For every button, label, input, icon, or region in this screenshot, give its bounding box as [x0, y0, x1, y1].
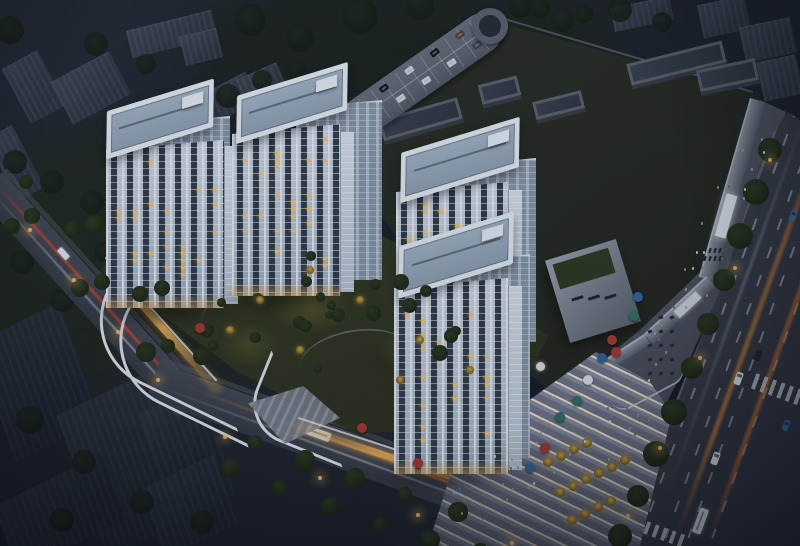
cafe-table — [659, 357, 664, 361]
bike-rack — [718, 248, 722, 253]
person — [728, 185, 730, 188]
lit-tree — [620, 455, 630, 465]
person — [608, 458, 610, 461]
cafe-table — [648, 329, 653, 333]
person — [510, 467, 512, 470]
street-light — [116, 330, 120, 334]
person — [639, 419, 641, 422]
cafe-table — [648, 315, 653, 319]
person — [506, 498, 508, 501]
lit-tree — [607, 462, 617, 472]
street-tree — [161, 339, 175, 353]
cafe-table — [648, 357, 653, 361]
street-tree — [208, 340, 219, 351]
person — [661, 324, 663, 327]
umbrella-red — [611, 347, 621, 357]
bike-rack — [713, 248, 717, 253]
street-light — [626, 514, 630, 518]
person — [761, 138, 763, 141]
street-tree — [713, 269, 734, 290]
cafe-table — [659, 315, 664, 319]
street-light — [223, 435, 227, 439]
cafe-table — [648, 343, 653, 347]
street-light — [416, 513, 420, 517]
street-tree — [370, 279, 381, 290]
cafe-table — [659, 329, 664, 333]
person — [721, 257, 723, 260]
bike-rack — [713, 256, 717, 261]
street-light — [768, 158, 772, 162]
umbrella-red — [413, 458, 423, 468]
person — [629, 427, 631, 430]
street-tree — [132, 286, 147, 301]
person — [685, 288, 687, 291]
street-tree — [643, 441, 669, 467]
person — [648, 419, 650, 422]
street-tree — [295, 450, 314, 469]
street-tree — [448, 502, 467, 521]
cafe-table — [670, 357, 675, 361]
person — [459, 487, 461, 490]
street-tree — [661, 399, 686, 424]
street-tree — [697, 313, 719, 335]
person — [517, 466, 519, 469]
street-tree — [314, 365, 322, 373]
person — [502, 483, 504, 486]
street-tree — [321, 497, 340, 516]
person — [584, 440, 586, 443]
lit-tree — [556, 451, 566, 461]
lit-tree — [356, 296, 364, 304]
person — [655, 363, 657, 366]
street-tree — [727, 223, 753, 249]
lit-tree — [581, 474, 591, 484]
street-tree — [154, 280, 170, 296]
person — [706, 294, 708, 297]
person — [533, 482, 535, 485]
lit-tree — [568, 481, 578, 491]
cafe-table — [659, 371, 664, 375]
street-tree — [681, 357, 703, 379]
street-light — [156, 378, 160, 382]
street-tree — [221, 459, 240, 478]
street-tree — [19, 175, 34, 190]
street-tree — [136, 342, 156, 362]
umbrella-red — [195, 323, 205, 333]
street-tree — [306, 251, 316, 261]
street-tree — [393, 274, 408, 289]
street-tree — [24, 208, 39, 223]
lit-tree — [543, 457, 553, 467]
person — [511, 458, 513, 461]
person — [703, 251, 705, 254]
person — [553, 471, 555, 474]
lit-tree — [594, 468, 604, 478]
bike-rack — [698, 256, 702, 261]
umbrella-blue — [597, 353, 607, 363]
person — [701, 266, 703, 269]
person — [654, 332, 656, 335]
cafe-table — [670, 315, 675, 319]
person — [751, 168, 753, 171]
person — [684, 268, 686, 271]
street-tree — [402, 298, 417, 313]
trees-lights-people — [0, 0, 800, 546]
street-tree — [250, 332, 262, 344]
umbrella-teal — [629, 311, 639, 321]
lit-tree — [567, 515, 577, 525]
gazebo — [536, 362, 545, 371]
street-tree — [398, 487, 412, 501]
lit-tree — [466, 366, 474, 374]
person — [528, 486, 530, 489]
umbrella-red — [607, 335, 617, 345]
person — [626, 407, 628, 410]
person — [648, 379, 650, 382]
bike-rack — [693, 256, 697, 261]
street-tree — [432, 345, 448, 361]
street-tree — [301, 276, 312, 287]
street-tree — [420, 530, 439, 546]
street-tree — [299, 320, 312, 333]
street-tree — [608, 524, 632, 546]
street-light — [510, 541, 514, 545]
umbrella-blue — [525, 463, 535, 473]
bike-rack — [703, 256, 707, 261]
lit-tree — [593, 502, 603, 512]
person — [574, 473, 576, 476]
cafe-table — [648, 371, 653, 375]
person — [469, 513, 471, 516]
person — [461, 512, 463, 515]
person — [685, 306, 687, 309]
street-light — [318, 476, 322, 480]
street-tree — [64, 222, 80, 238]
umbrella-red — [357, 423, 367, 433]
cafe-table — [659, 343, 664, 347]
lit-tree — [296, 346, 304, 354]
person — [634, 433, 636, 436]
lit-tree — [416, 336, 424, 344]
cafe-table — [670, 343, 675, 347]
lit-tree — [606, 496, 616, 506]
person — [501, 500, 503, 503]
street-tree — [248, 435, 262, 449]
person — [482, 517, 484, 520]
street-light — [658, 446, 662, 450]
person — [692, 267, 694, 270]
street-tree — [4, 218, 19, 233]
street-tree — [420, 285, 432, 297]
street-tree — [272, 480, 287, 495]
street-tree — [366, 305, 382, 321]
lit-tree — [226, 326, 234, 334]
street-tree — [85, 215, 103, 233]
street-tree — [331, 308, 345, 322]
person — [742, 149, 744, 152]
person — [717, 186, 719, 189]
person — [696, 251, 698, 254]
person — [453, 491, 455, 494]
person — [540, 432, 542, 435]
umbrella-red — [540, 443, 550, 453]
bike-rack — [708, 248, 712, 253]
person — [512, 488, 514, 491]
person — [536, 442, 538, 445]
person — [494, 455, 496, 458]
bike-rack — [698, 248, 702, 253]
street-tree — [743, 179, 769, 205]
person — [609, 420, 611, 423]
person — [665, 351, 667, 354]
street-tree — [345, 468, 365, 488]
lit-tree — [555, 487, 565, 497]
street-tree — [217, 298, 226, 307]
street-tree — [373, 517, 387, 531]
cafe-table — [670, 371, 675, 375]
lit-tree — [256, 296, 264, 304]
architectural-rendering — [0, 0, 800, 546]
person — [607, 407, 609, 410]
street-light — [28, 228, 32, 232]
person — [701, 222, 703, 225]
person — [658, 338, 660, 341]
umbrella-white — [583, 375, 593, 385]
street-tree — [193, 347, 211, 365]
person — [637, 414, 639, 417]
person — [529, 445, 531, 448]
person — [673, 306, 675, 309]
street-tree — [94, 274, 111, 291]
bike-rack — [708, 256, 712, 261]
street-light — [72, 278, 76, 282]
street-tree — [627, 485, 649, 507]
street-tree — [444, 329, 458, 343]
lit-tree — [396, 376, 404, 384]
person — [556, 439, 558, 442]
lit-tree — [580, 509, 590, 519]
lit-tree — [306, 266, 314, 274]
street-light — [698, 356, 702, 360]
street-tree — [316, 292, 325, 301]
umbrella-blue — [633, 292, 643, 302]
umbrella-teal — [572, 396, 582, 406]
cafe-table — [670, 329, 675, 333]
street-light — [733, 266, 737, 270]
umbrella-teal — [555, 412, 565, 422]
person — [569, 453, 571, 456]
